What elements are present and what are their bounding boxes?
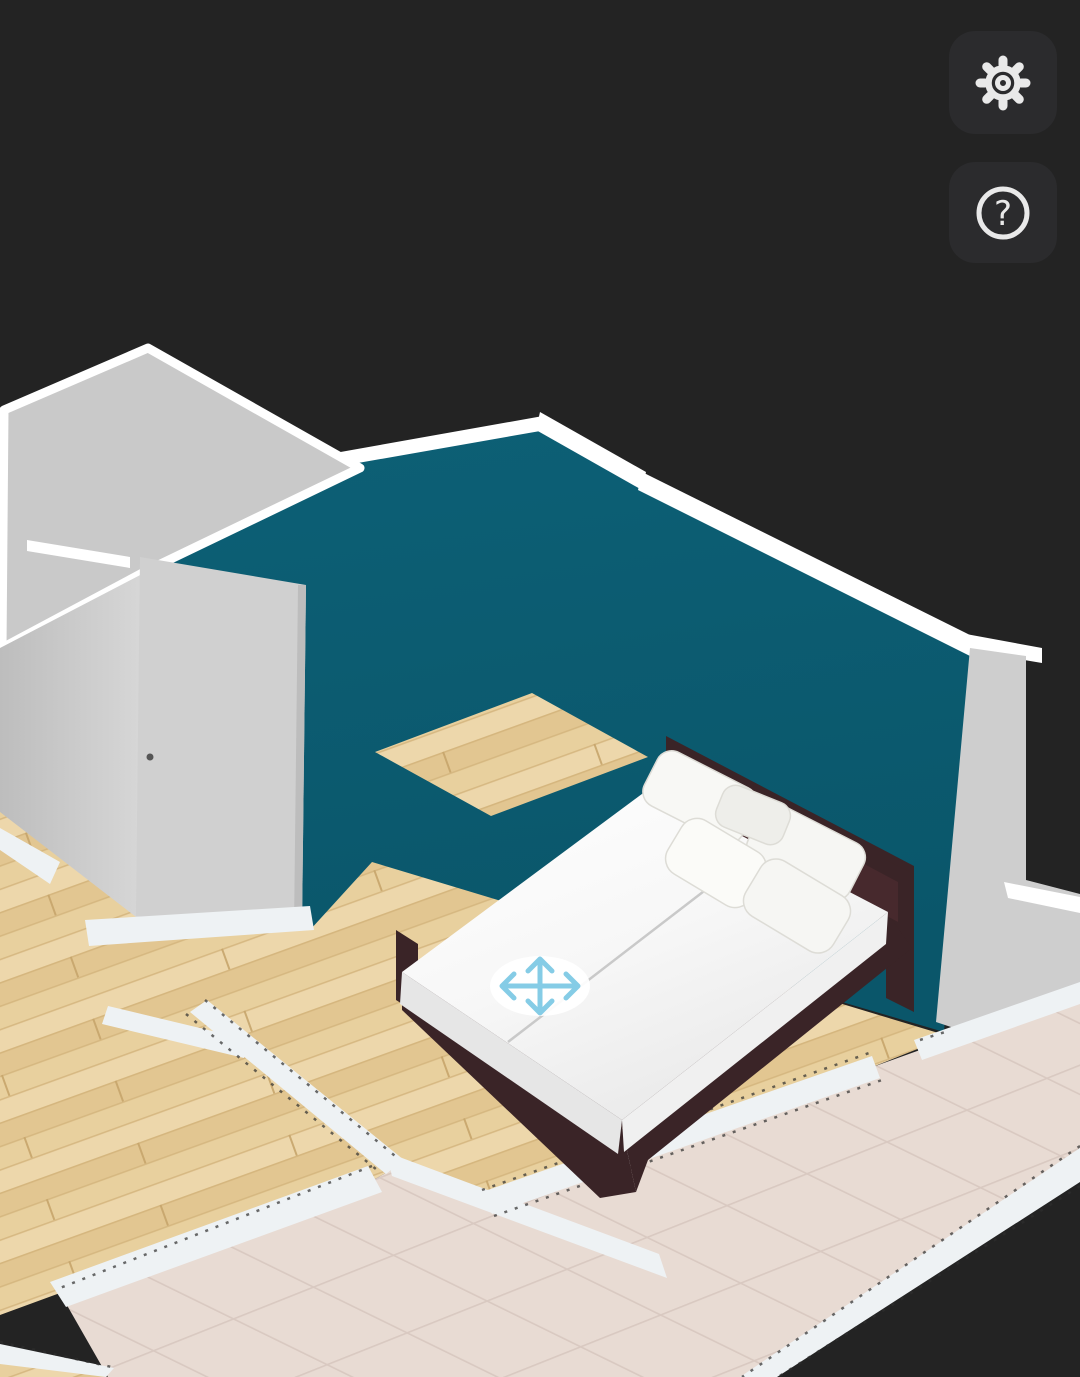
app-canvas: ? xyxy=(0,0,1080,1377)
left-door[interactable] xyxy=(136,557,306,928)
help-button[interactable]: ? xyxy=(949,162,1057,263)
question-mark-glyph: ? xyxy=(994,194,1012,234)
door-handle xyxy=(147,754,154,761)
gear-icon xyxy=(975,55,1031,111)
settings-button[interactable] xyxy=(949,31,1057,134)
move-handle[interactable] xyxy=(490,956,590,1016)
question-mark-icon: ? xyxy=(973,183,1033,243)
viewport-3d[interactable] xyxy=(0,0,1080,1377)
